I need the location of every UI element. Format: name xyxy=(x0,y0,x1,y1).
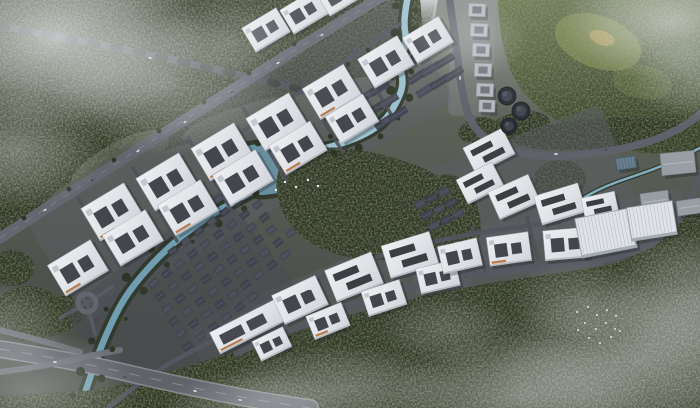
aerial-scene-svg xyxy=(0,0,700,408)
aerial-masterplan-render xyxy=(0,0,700,408)
color-grade xyxy=(0,0,700,408)
